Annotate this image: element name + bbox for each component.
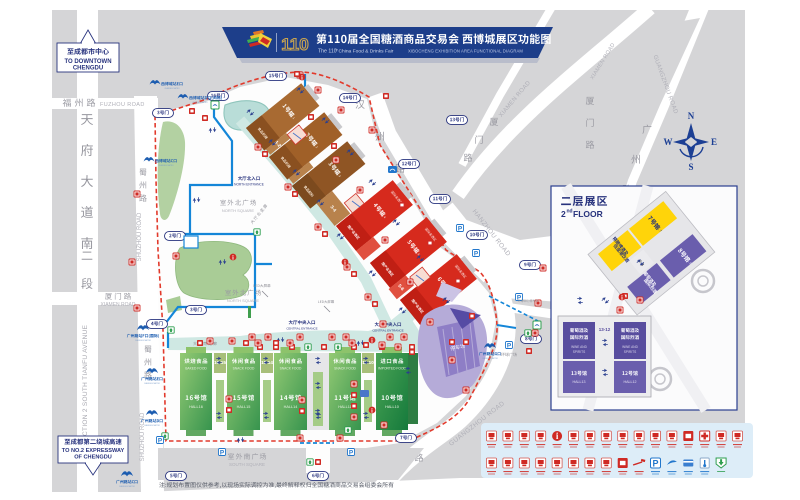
svg-text:CHENGDU METRO: CHENGDU METRO — [192, 102, 208, 104]
svg-text:CHENGDU METRO: CHENGDU METRO — [144, 425, 161, 427]
svg-text:CHENGDU METRO: CHENGDU METRO — [135, 340, 152, 342]
svg-text:SHUZHOU ROAD: SHUZHOU ROAD — [137, 212, 143, 261]
svg-text:FUZHOU ROAD: FUZHOU ROAD — [100, 102, 145, 108]
svg-text:NORTH ENTRANCE: NORTH ENTRANCE — [234, 183, 264, 187]
svg-text:NORTH SQUARE: NORTH SQUARE — [222, 208, 254, 213]
svg-text:P: P — [652, 458, 658, 468]
svg-text:N: N — [688, 111, 695, 121]
svg-text:CENTRAL ENTRANCE: CENTRAL ENTRANCE — [372, 329, 403, 333]
svg-text:HALL13: HALL13 — [573, 380, 586, 384]
svg-text:HALL12: HALL12 — [624, 380, 637, 384]
svg-text:XIAMEN ROAD: XIAMEN ROAD — [100, 302, 135, 308]
svg-text:CHENGDU METRO: CHENGDU METRO — [119, 486, 136, 488]
svg-text:CHENGDU METRO: CHENGDU METRO — [164, 88, 180, 90]
svg-text:SNACK FOOD: SNACK FOOD — [280, 367, 302, 371]
svg-text:2: 2 — [561, 209, 566, 219]
svg-text:HALL10: HALL10 — [385, 405, 399, 409]
svg-text:SPIRITS: SPIRITS — [624, 350, 636, 354]
svg-text:CHENGDU METRO: CHENGDU METRO — [158, 165, 174, 167]
svg-text:HALL14: HALL14 — [284, 405, 298, 409]
svg-text:TO DOWNTOWN: TO DOWNTOWN — [64, 59, 111, 65]
svg-text:110: 110 — [281, 35, 308, 54]
svg-text:TO NO.2 EXPRESSWAY: TO NO.2 EXPRESSWAY — [62, 448, 125, 454]
svg-text:China Food & Drinks Fair: China Food & Drinks Fair — [339, 49, 394, 55]
svg-text:XIBOCHENG EXHIBITION AREA FUNC: XIBOCHENG EXHIBITION AREA FUNCTIONAL DIA… — [408, 49, 523, 54]
svg-text:SECTION 2 SOUTH TIANFU AVENUE: SECTION 2 SOUTH TIANFU AVENUE — [82, 324, 89, 445]
svg-text:SPIRITS: SPIRITS — [573, 350, 585, 354]
svg-text:HALL16: HALL16 — [189, 405, 203, 409]
svg-text:BAKED FOOD: BAKED FOOD — [185, 367, 207, 371]
svg-text:W: W — [664, 137, 673, 147]
svg-text:WINE AND: WINE AND — [571, 345, 587, 349]
svg-text:CHENGDU METRO: CHENGDU METRO — [482, 358, 499, 360]
svg-text:nd: nd — [567, 209, 573, 215]
svg-text:CENTRAL ENTRANCE: CENTRAL ENTRANCE — [286, 327, 317, 331]
svg-text:The 110: The 110 — [318, 49, 337, 55]
svg-text:CHENGDU: CHENGDU — [73, 66, 103, 72]
svg-text:OF CHENGDU: OF CHENGDU — [74, 455, 112, 461]
svg-text:WINE AND: WINE AND — [622, 345, 638, 349]
svg-text:NORTH SQUARE: NORTH SQUARE — [227, 298, 259, 303]
svg-text:IMPORTED FOOD: IMPORTED FOOD — [378, 367, 406, 371]
svg-text:FLOOR: FLOOR — [573, 209, 603, 219]
svg-text:CHENGDU METRO: CHENGDU METRO — [144, 383, 161, 385]
svg-text:SNACK FOOD: SNACK FOOD — [233, 367, 255, 371]
svg-text:HALL15: HALL15 — [237, 405, 251, 409]
svg-text:SNACK FOOD: SNACK FOOD — [334, 367, 356, 371]
svg-text:E: E — [711, 137, 717, 147]
svg-text:13-12: 13-12 — [599, 327, 611, 332]
svg-text:SOUTH SQUARE: SOUTH SQUARE — [229, 462, 265, 467]
svg-text:S: S — [688, 162, 693, 172]
svg-text:HALL11: HALL11 — [338, 405, 351, 409]
